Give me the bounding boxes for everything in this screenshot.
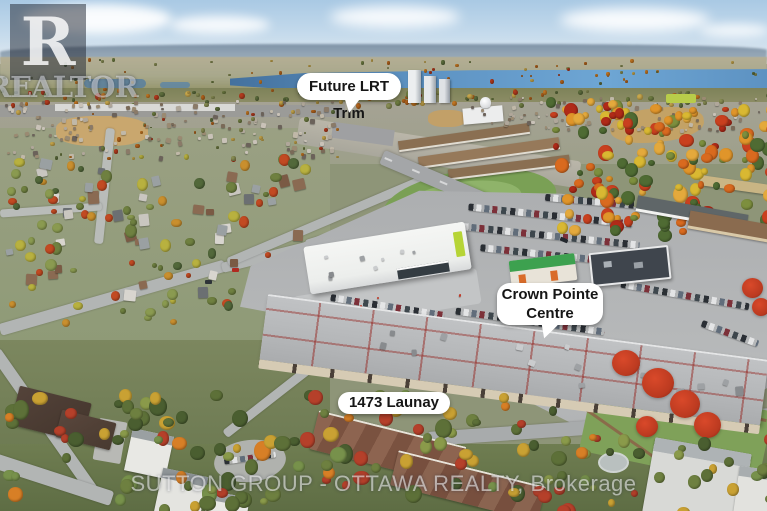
small-structure [138,237,150,249]
tree [204,103,208,107]
tree [474,96,478,100]
tree [698,181,704,189]
tree [595,74,598,77]
small-structure [680,129,684,133]
tree [724,184,735,193]
small-structure [244,194,254,205]
aerial-photo: Future LRT Trim Crown Pointe Centre 1473… [0,0,767,511]
tree [530,79,534,82]
tree [599,82,602,85]
small-structure [162,113,166,118]
tree [629,177,638,185]
highrise-tower [424,76,436,103]
tree [587,98,595,106]
tree [316,101,319,104]
tree [762,210,767,224]
tree [521,75,523,77]
tree [620,71,623,73]
tree [320,409,329,419]
small-structure [221,138,226,143]
tree [719,99,724,103]
tree [152,112,156,116]
tree [114,149,118,153]
tree [190,501,200,511]
tree [251,117,255,121]
field [428,110,466,127]
small-structure [390,330,396,335]
tree [621,191,635,205]
tree [160,239,171,252]
tree [125,224,137,238]
tree [192,259,201,268]
tree [211,96,214,99]
realtor-watermark-letter: R [21,9,76,75]
small-structure [311,154,315,159]
tree [400,454,414,469]
tree [658,218,670,228]
red-maple-tree [642,368,674,398]
tree [37,220,47,230]
tree [741,199,753,209]
tree [698,437,711,451]
small-structure [331,100,334,103]
small-structure [712,113,715,116]
small-structure [126,149,131,154]
tree [701,168,708,175]
tree [14,158,24,166]
tree [561,436,571,445]
tree [490,79,494,83]
tree [162,300,169,308]
tree [271,89,274,92]
tree [330,447,347,463]
tree [67,161,75,170]
tree [129,260,135,266]
tree [550,112,557,118]
tree [679,103,683,108]
tree [413,424,424,435]
tree [674,450,684,459]
tree [599,127,607,134]
small-structure [289,114,292,117]
tree [654,142,666,154]
small-structure [206,209,214,215]
tree [259,80,262,84]
tree [656,71,658,73]
highrise-tower [439,79,450,103]
restaurant-accent [550,270,558,281]
tree [210,118,213,121]
tree [675,184,684,191]
tree [455,64,459,67]
tree [324,128,328,132]
tree [319,147,323,150]
tree [713,182,720,189]
tree [164,272,173,280]
tree [630,215,638,222]
red-maple-tree [670,390,700,418]
small-structure [440,333,448,341]
small-structure [213,114,218,119]
tree [28,237,35,245]
tree [239,216,249,228]
small-structure [735,386,744,395]
tree [207,297,216,305]
tree [154,95,159,101]
small-structure [69,131,73,134]
tree [145,308,156,317]
tree [159,504,170,511]
tree [300,432,314,447]
small-structure [535,111,538,114]
future-lrt-label-tail [342,96,361,114]
tree [562,194,574,205]
tree [50,142,54,146]
small-structure [758,111,761,113]
small-structure [85,183,94,192]
tree [55,156,58,159]
tree [70,268,77,273]
tree [577,170,583,176]
tree [150,392,162,404]
launay-label: 1473 Launay [338,392,450,414]
car [205,280,212,284]
realtor-watermark-logo: R [10,4,86,80]
red-maple-tree [742,278,763,298]
tree [606,72,609,76]
car [232,268,239,272]
tree [669,103,674,107]
tree [251,113,255,116]
small-structure [286,142,290,146]
brokerage-watermark: SUTTON GROUP - OTTAWA REALTY, Brokerage [0,471,767,497]
tree [291,110,295,114]
tree [467,94,473,99]
tree [304,117,308,122]
tree [354,451,368,466]
small-structure [226,171,238,183]
small-structure [309,119,314,124]
small-structure [698,383,705,389]
tree [76,203,84,210]
tree [35,176,43,184]
tree [703,101,707,105]
small-structure [72,119,77,125]
tree [583,214,592,224]
tree [608,100,618,109]
tree [606,176,613,182]
tree [594,168,603,176]
tree [45,259,57,271]
small-structure [738,100,741,103]
tree [265,252,271,258]
tree [584,62,587,64]
tree [269,187,277,196]
small-structure [293,230,303,242]
small-structure [512,105,516,109]
tree [650,104,662,114]
realtor-watermark-text: REALTOR [0,70,138,104]
small-structure [253,133,256,136]
red-maple-tree [694,412,721,438]
tree [677,507,690,511]
tree [222,91,226,94]
tree [441,60,445,64]
tree [263,192,269,197]
small-structure [328,135,332,139]
tree [62,453,71,463]
tree [120,308,125,314]
small-structure [295,108,299,113]
tree [140,131,143,133]
tree [578,126,589,139]
launay-label-text: 1473 Launay [349,394,439,411]
tree [240,160,250,171]
small-structure [221,124,225,128]
small-structure [538,115,540,117]
small-structure [527,359,535,367]
tree [699,140,706,146]
tree [172,437,187,451]
tree [386,103,392,108]
tree [135,144,139,149]
tree [336,156,338,158]
small-structure [139,214,151,227]
small-structure [324,107,329,112]
tree [25,252,37,262]
tree [132,157,135,160]
tree [738,104,750,117]
tree [472,419,481,426]
tree [764,434,767,445]
tree [215,107,220,112]
small-structure [698,125,701,129]
tree [576,447,589,458]
tree [16,110,21,115]
tree [78,166,84,172]
tree [92,113,94,115]
small-structure [360,256,366,263]
small-structure [574,363,581,370]
tree [560,80,564,84]
small-structure [412,250,416,254]
tree [529,440,538,450]
small-structure [556,104,560,108]
tree [742,131,749,139]
red-maple-tree [752,298,767,316]
small-structure [267,197,276,206]
small-structure [230,259,239,267]
tree [618,434,630,448]
tree [551,451,567,466]
tree [679,228,686,235]
tree [648,160,655,166]
tree [154,436,163,444]
tree [194,131,196,134]
small-structure [600,97,602,100]
crown-pointe-label: Crown Pointe Centre [497,283,603,325]
small-structure [63,210,73,220]
red-maple-tree [636,416,658,437]
tree [763,189,767,202]
small-structure [301,102,305,106]
tree [569,186,577,193]
tree [120,430,130,439]
tree [558,74,560,76]
tree [686,149,699,161]
small-structure [564,343,570,349]
small-structure [112,113,117,117]
cloud [330,6,460,28]
tree [11,169,21,179]
tree [719,148,733,162]
tree [146,204,154,211]
tree [625,163,638,177]
tree [615,108,625,118]
small-structure [323,255,327,259]
tree [434,437,447,451]
rooftop-unit [603,261,612,268]
small-structure [228,127,231,130]
small-structure [159,103,162,106]
small-structure [688,122,692,126]
tree [210,61,212,63]
small-structure [516,344,524,351]
small-structure [78,137,82,142]
tree [194,178,205,189]
small-structure [379,342,387,350]
tree [163,418,174,427]
tree [162,144,164,146]
tree [301,153,304,156]
tree [279,71,282,75]
tree [45,244,55,254]
tree [211,81,214,84]
small-structure [121,131,126,135]
tree [5,413,13,421]
small-structure [157,137,160,140]
tree [101,60,104,62]
small-structure [292,177,306,190]
tree [336,128,339,131]
tree [158,265,163,270]
tree [45,189,54,198]
tree [199,496,216,511]
tree [664,116,673,125]
red-maple-tree [612,350,640,376]
tree [549,406,557,416]
crown-pointe-label-line1: Crown Pointe [497,285,603,304]
tree [176,411,188,424]
tree [88,58,91,61]
small-structure [193,104,198,109]
small-structure [511,117,514,120]
cloud [700,24,767,37]
tree [288,158,299,168]
tree [54,426,66,436]
tree [15,240,26,252]
tree [553,143,559,150]
tree [731,61,734,64]
tree [130,219,138,226]
tree [323,427,339,442]
tree [294,141,297,144]
store-accent-sign [453,231,466,257]
tree [678,159,689,169]
tree [137,178,148,191]
small-structure [714,102,718,106]
small-structure [722,378,729,385]
water-tower [480,97,491,108]
tree [625,135,633,145]
tree [452,101,457,106]
small-structure [73,127,76,130]
tree [139,155,144,159]
tree [517,420,526,428]
tree [637,94,642,99]
tree [750,138,765,152]
tree [196,93,200,97]
tree [246,111,249,115]
tree [639,175,653,187]
small-structure [380,258,384,262]
tree [308,390,323,405]
small-structure [562,100,565,104]
tree [602,151,613,160]
small-structure [307,149,311,153]
small-structure [261,112,265,116]
crown-pointe-label-line2: Centre [497,304,603,323]
tree [36,269,43,276]
tree [208,248,217,258]
tree [105,214,113,222]
tree [185,238,194,246]
cloud [170,16,270,34]
highrise-tower [408,70,421,103]
tree [13,400,30,420]
tree [543,90,547,94]
small-structure [731,126,735,130]
tree [308,65,311,67]
small-structure [198,287,208,298]
tree [9,301,16,308]
tree [190,446,205,460]
small-structure [412,349,417,355]
tree [513,90,518,95]
small-structure [480,109,483,112]
tree [682,112,692,120]
tree [300,164,311,174]
tree [429,71,432,74]
small-structure [373,266,378,271]
tree [715,115,729,127]
future-lrt-label: Future LRT Trim [297,73,401,100]
tree [167,289,178,300]
small-structure [531,121,535,124]
tree [260,498,268,505]
small-structure [82,152,85,155]
small-structure [193,205,205,215]
garden-pond [598,452,629,473]
tree [289,437,299,446]
tree [322,136,326,139]
tree [625,80,628,83]
tree [21,186,28,193]
tree [596,186,608,200]
rooftop-unit [634,262,644,269]
tree [211,122,213,124]
tree [225,496,240,511]
